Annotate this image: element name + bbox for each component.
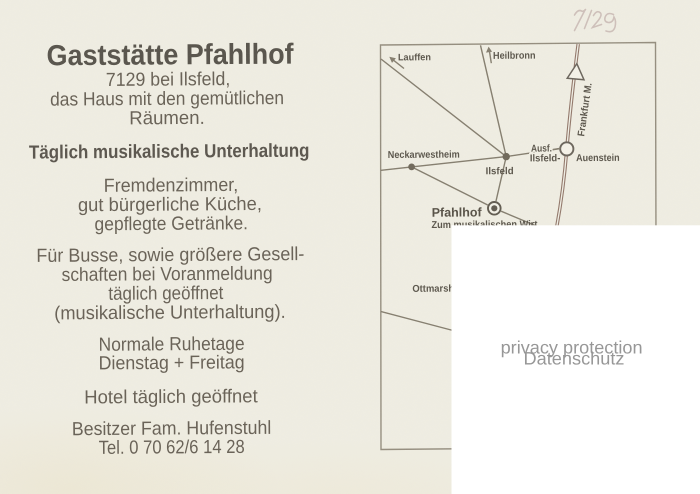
svg-text:Datenschutz: Datenschutz <box>524 349 625 369</box>
